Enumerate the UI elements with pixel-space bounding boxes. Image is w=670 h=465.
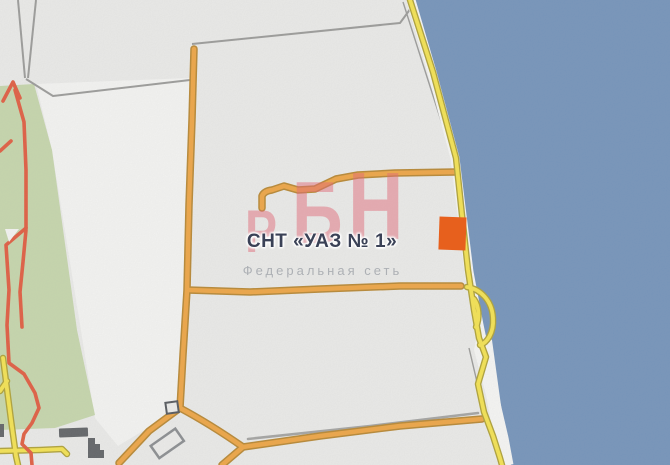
settlement-label: СНТ «УАЗ № 1» [192, 231, 452, 253]
map-canvas[interactable]: Р Б Н СНТ «УАЗ № 1» Федеральная сеть [0, 0, 670, 465]
watermark-subtitle: Федеральная сеть [200, 263, 445, 278]
